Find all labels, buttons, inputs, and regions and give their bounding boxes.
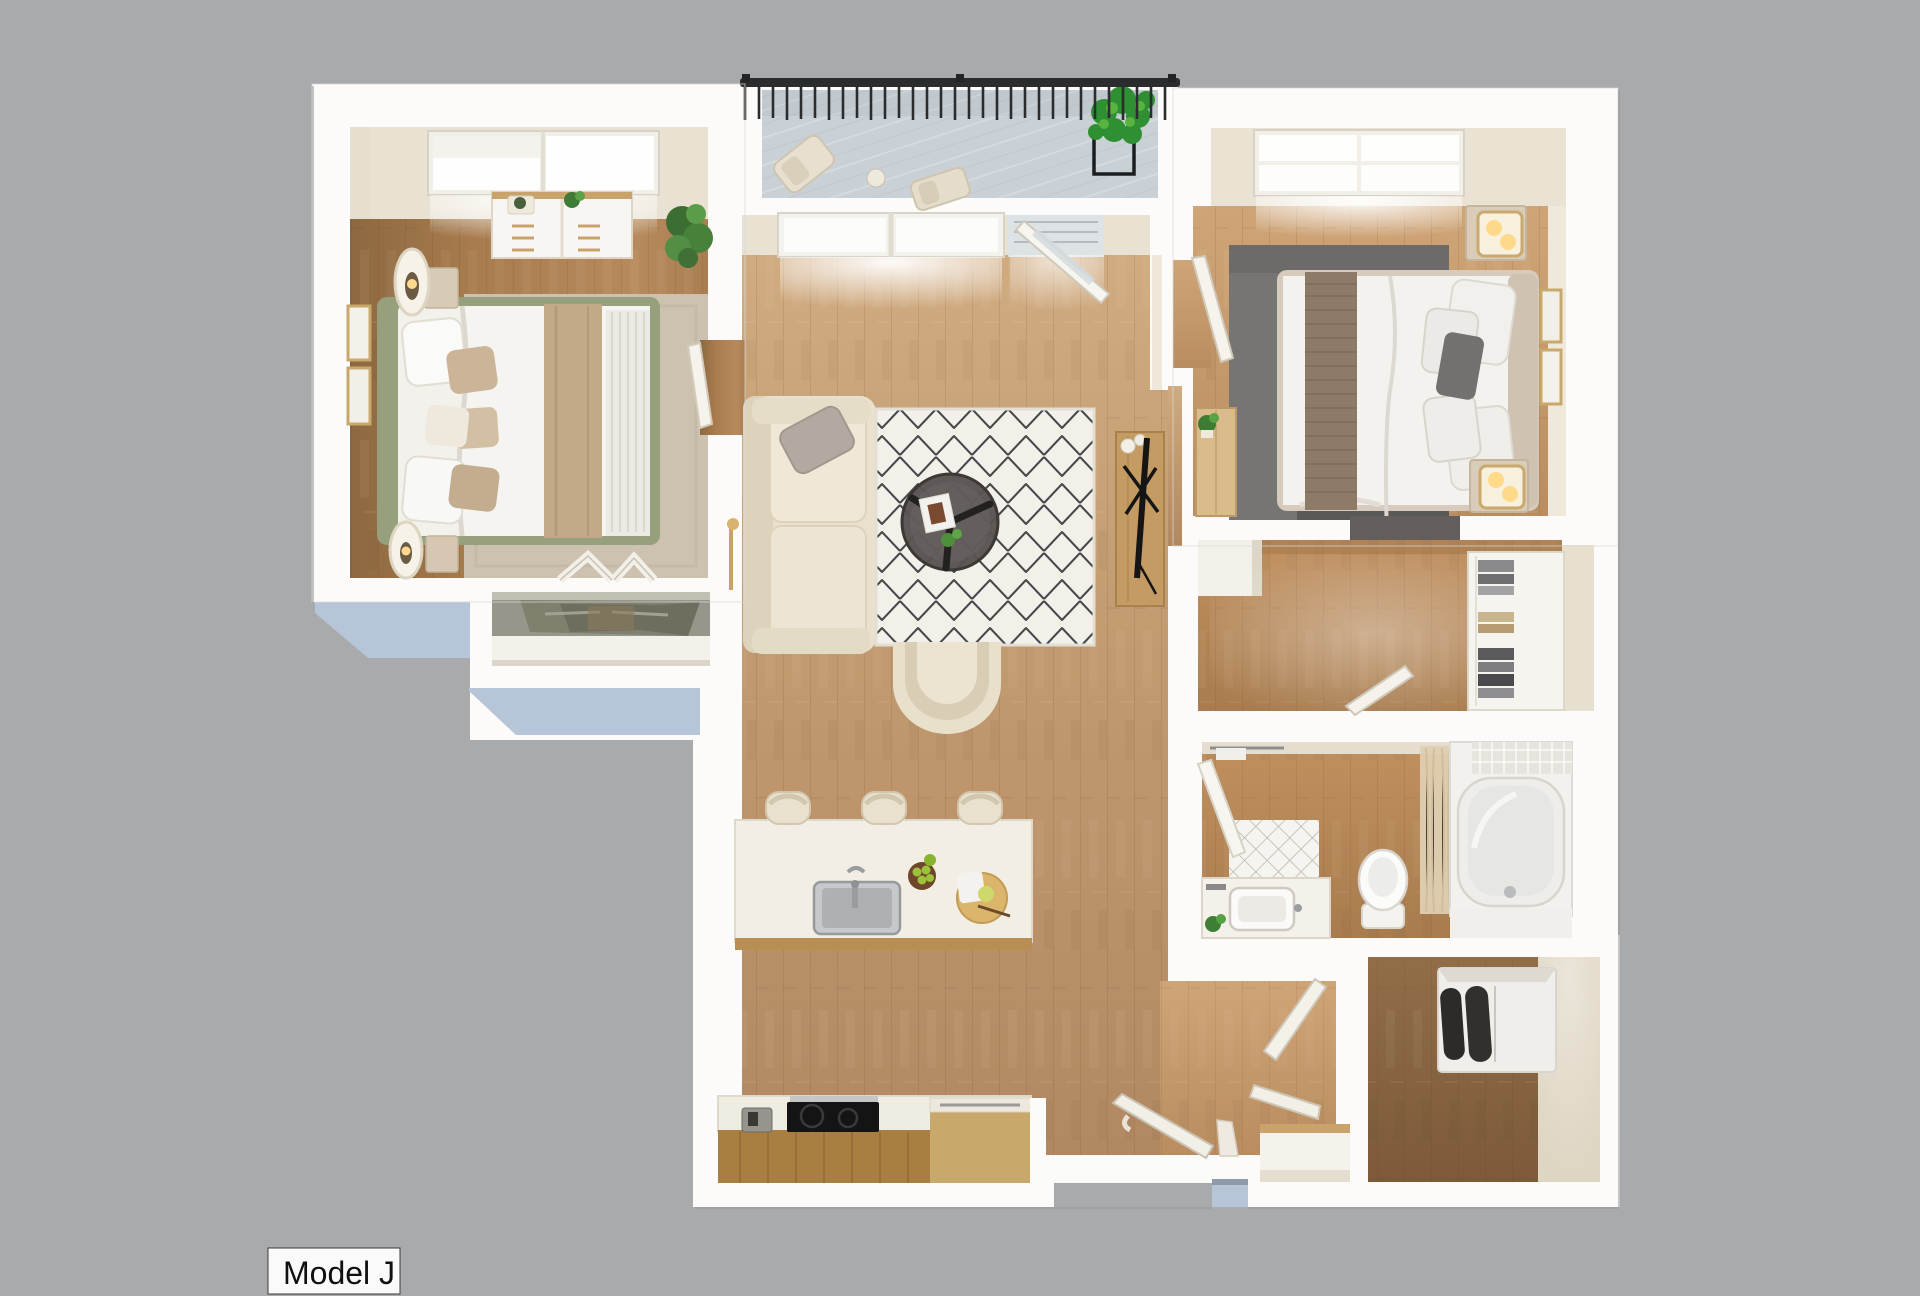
svg-text:Model J: Model J [283, 1255, 395, 1291]
